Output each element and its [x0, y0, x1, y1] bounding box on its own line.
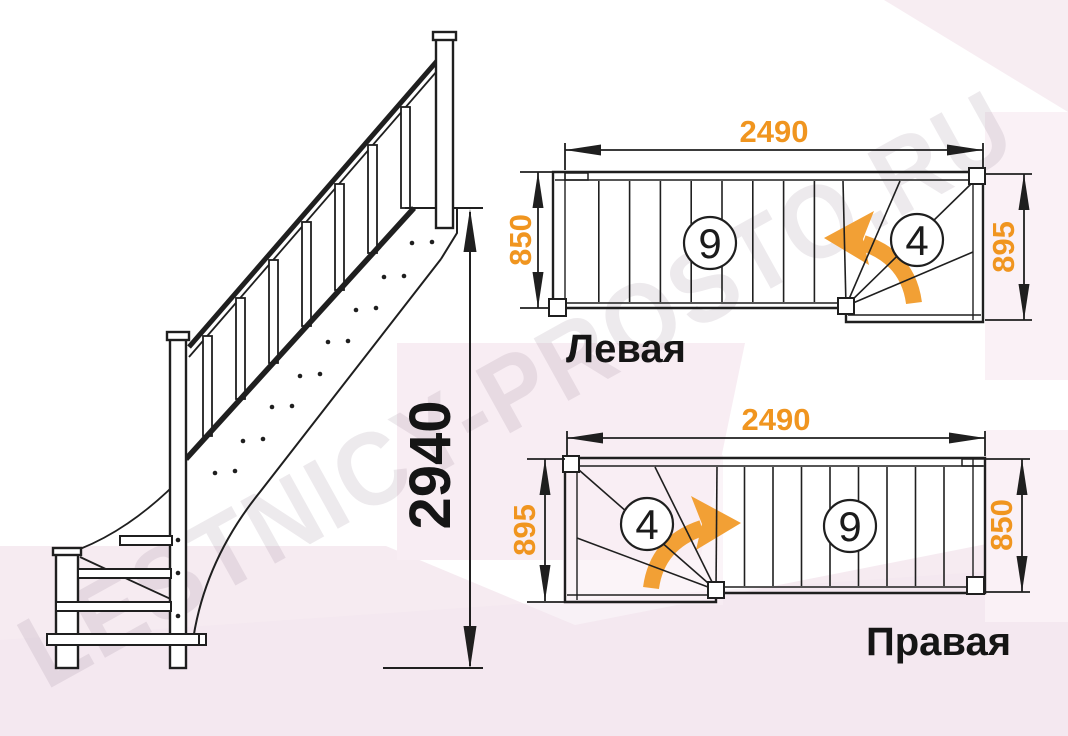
stair-drawing-page: LESTNICY-PROSTO.RU	[0, 0, 1068, 736]
plan-left-turn-width-label: 895	[986, 221, 1021, 273]
arrow-up-icon	[533, 172, 544, 208]
plan-right-width-label: 850	[984, 499, 1019, 551]
arrow-down-icon	[540, 565, 551, 601]
newel-post-top-cap	[433, 32, 456, 40]
center-post	[170, 339, 186, 668]
plan-left-width-label: 850	[503, 214, 538, 266]
balusters	[203, 107, 410, 436]
arrow-up-icon	[464, 209, 477, 252]
bottom-tread-3	[56, 602, 171, 611]
plan-left-title: Левая	[566, 327, 686, 371]
plan-left-entry-mark	[565, 173, 588, 180]
handrail-bottom-line	[189, 71, 437, 357]
plan-left-length-label: 2490	[740, 114, 809, 149]
plan-right-winder-count: 4	[635, 501, 658, 548]
bottom-tread-4	[47, 634, 206, 645]
stair-drawing-canvas: LESTNICY-PROSTO.RU	[0, 0, 1068, 736]
newel-post-top	[436, 36, 453, 228]
plan-right-straight-count: 9	[838, 503, 861, 550]
newel-post-bottom-cap	[53, 548, 81, 555]
bottom-tread-2	[78, 569, 171, 578]
plan-right-title: Правая	[866, 620, 1011, 664]
center-post-cap	[167, 332, 189, 340]
arrow-right-icon	[949, 433, 985, 444]
elevation-height-label: 2940	[398, 400, 463, 529]
plan-left-winder-count: 4	[905, 217, 928, 264]
bottom-tread-4-cap	[199, 634, 206, 645]
arrow-down-icon	[533, 272, 544, 308]
plan-right-length-label: 2490	[742, 402, 811, 437]
plan-right-turn-width-label: 895	[507, 504, 542, 556]
bottom-tread-1	[120, 536, 172, 545]
plan-left-straight-count: 9	[698, 220, 721, 267]
arrow-left-icon	[565, 145, 601, 156]
handrail-top-line	[189, 61, 437, 347]
